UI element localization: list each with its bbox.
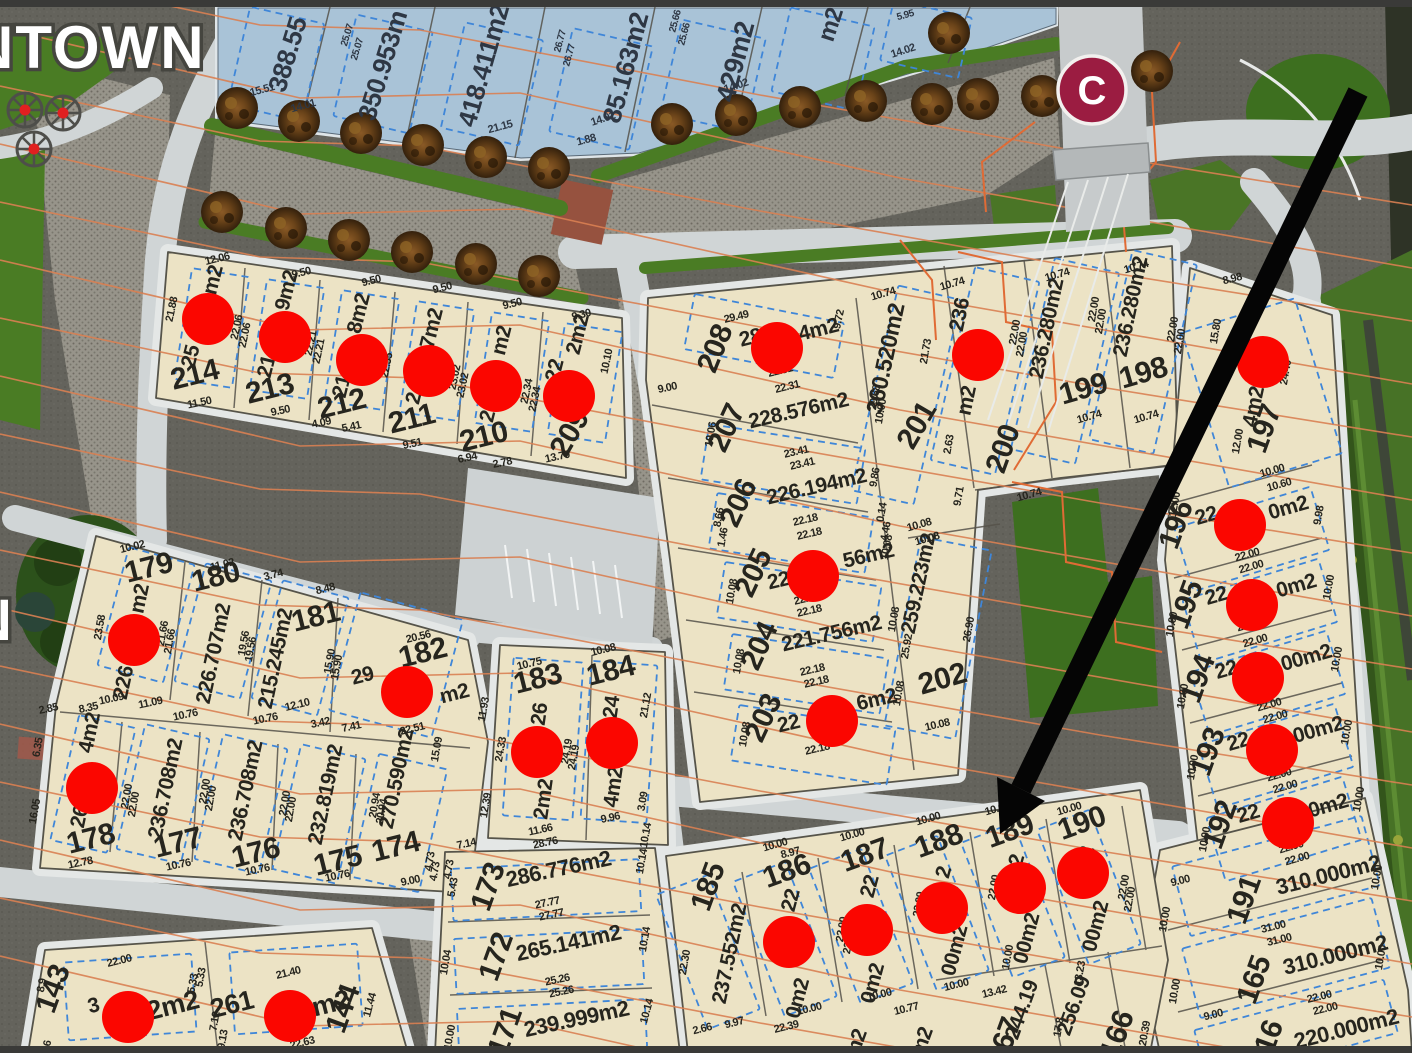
downtown-label: NTOWN [0,14,206,81]
red-dot-marker-lot-192[interactable] [1262,797,1314,849]
tree-icon [265,207,307,249]
lot-area-184: 24 [599,694,625,720]
red-dot-marker-lot-210[interactable] [470,360,522,412]
tree-icon [779,86,821,128]
lot-area-183: 26 [527,701,553,726]
top-border [0,0,1412,7]
red-dot-marker-lot-194[interactable] [1232,652,1284,704]
district-label-n: N [0,588,14,653]
red-dot-marker-lot-200[interactable] [952,329,1004,381]
tree-icon [528,147,570,189]
red-dot-marker-lot-179[interactable] [108,614,160,666]
tree-icon [455,243,497,285]
tree-icon [391,231,433,273]
red-dot-marker-lot-203[interactable] [806,695,858,747]
red-dot-marker-lot-178[interactable] [66,762,118,814]
park-wheel-icon [17,132,51,166]
red-dot-marker-lot-184[interactable] [586,717,638,769]
red-dot-marker-lot-196[interactable] [1214,499,1266,551]
tree-icon [957,78,999,120]
gate-badge-label: C [1078,69,1107,113]
tree-icon [201,191,243,233]
tree-icon [465,136,507,178]
red-dot-marker-lot-186[interactable] [763,916,815,968]
red-dot-marker-lot-211[interactable] [403,345,455,397]
park-wheel-icon [8,93,42,127]
red-dot-marker-lot-212[interactable] [336,334,388,386]
tree-icon [651,103,693,145]
tree-icon [518,255,560,297]
red-dot-marker-lot-144[interactable] [264,990,316,1042]
red-dot-marker-lot-143[interactable] [102,991,154,1043]
red-dot-marker-lot-182[interactable] [381,666,433,718]
park-wheel-icon [46,96,80,130]
tree-icon [328,219,370,261]
red-dot-marker-lot-189[interactable] [994,862,1046,914]
red-dot-marker-lot-209[interactable] [543,370,595,422]
red-dot-marker-lot-188[interactable] [916,882,968,934]
bottom-border [0,1046,1412,1053]
gate-badge-c[interactable]: C [1058,56,1126,124]
tree-icon [402,124,444,166]
red-dot-marker-lot-193[interactable] [1246,724,1298,776]
red-dot-marker-lot-195[interactable] [1226,579,1278,631]
tree-icon [911,83,953,125]
dim-label: 8.9 [35,977,49,993]
red-dot-marker-lot-187[interactable] [841,904,893,956]
red-dot-marker-lot-208[interactable] [751,322,803,374]
masterplan-map[interactable]: 388.55350.953m25.0725.07418.411m226.7726… [0,0,1412,1053]
tree-icon [845,80,887,122]
red-dot-marker-lot-214[interactable] [182,293,234,345]
tree-icon [1021,75,1063,117]
tree-icon [928,12,970,54]
red-dot-marker-lot-190[interactable] [1057,847,1109,899]
red-dot-marker-lot-213[interactable] [259,311,311,363]
red-dot-marker-lot-205[interactable] [787,550,839,602]
tree-icon [1131,50,1173,92]
red-dot-marker-lot-183[interactable] [511,726,563,778]
map-canvas[interactable]: 388.55350.953m25.0725.07418.411m226.7726… [0,0,1412,1053]
